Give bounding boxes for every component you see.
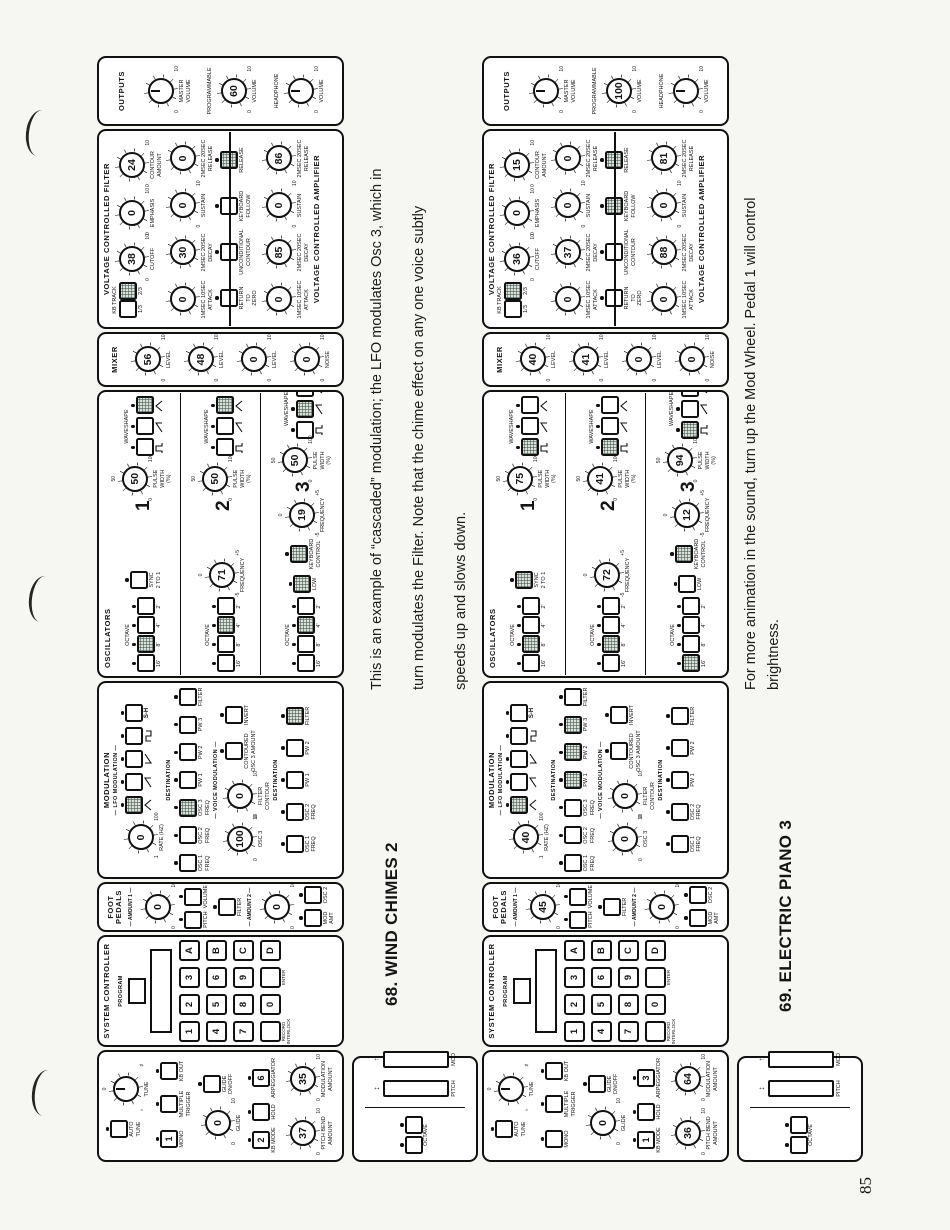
keypad-7-button[interactable]: 7: [618, 1021, 639, 1042]
button-label: 8': [541, 642, 548, 646]
button-label: MOD AMT: [323, 907, 337, 929]
keypad-d-button[interactable]: D: [260, 940, 281, 961]
glide-knob[interactable]: 0100GLIDE: [583, 1103, 628, 1143]
vcf-decay-knob[interactable]: 302MSEC 20SECDECAY: [163, 230, 215, 275]
lfo-dest-osc-1-freq-button[interactable]: OSC 1FREQ: [559, 850, 596, 876]
osc2-wave-triangle-button[interactable]: [596, 396, 629, 415]
keypad-a-button[interactable]: A: [564, 940, 585, 961]
lfo-wave-saw-up-button[interactable]: [121, 772, 154, 793]
osc2-wave-triangle-button[interactable]: [211, 396, 244, 415]
amount-1-label: — AMOUNT 1 —: [513, 888, 519, 927]
osc2-octave-8-button[interactable]: 8': [597, 636, 627, 653]
knob-value: 0: [555, 193, 581, 219]
pedal-pitch-button[interactable]: PITCH: [564, 910, 594, 929]
button-cap: [603, 898, 621, 916]
button-label: 16': [156, 660, 163, 667]
sync-2-to-1-button[interactable]: SYNC2 TO 1: [510, 566, 547, 594]
osc2-octave-16-button[interactable]: 16': [212, 655, 242, 672]
headphone-volume-knob[interactable]: 010VOLUME: [666, 65, 711, 117]
voice-dest-pw-2-button[interactable]: PW 2: [666, 733, 696, 763]
record-interlock-button[interactable]: [260, 1021, 281, 1042]
kb-mode-button[interactable]: 2KB MODE: [248, 1127, 278, 1153]
mixer-osc2-level-knob[interactable]: 01048LEVEL: [181, 337, 226, 383]
knob-dial: 010100: [223, 822, 257, 856]
button-label: 2': [701, 604, 708, 608]
keypad-b-button[interactable]: B: [206, 940, 227, 961]
osc2-pulse-width-knob[interactable]: 01005050PULSE WIDTH(%): [195, 461, 254, 496]
vca-sustain-knob[interactable]: 0100SUSTAIN: [644, 183, 689, 228]
knob-label: OSC 3: [643, 831, 650, 848]
lfo-rate-knob[interactable]: .110040RATE (HZ): [506, 818, 551, 858]
invert-button[interactable]: INVERT: [220, 702, 250, 728]
arpeggiator-button[interactable]: 3ARPEGGIATOR: [633, 1059, 663, 1097]
osc1-octave-16-button[interactable]: 16': [517, 655, 547, 672]
lfo-dest-osc-1-freq-button[interactable]: OSC 1FREQ: [174, 850, 211, 876]
scale-min: 0: [149, 498, 154, 501]
contoured-osc-3-amount-button[interactable]: CONTOURED OSC 3 AMOUNT: [220, 730, 257, 772]
tune-knob[interactable]: ♭♯0TUNE: [491, 1068, 536, 1110]
vcf-emphasis-knob[interactable]: 0100EMPHASIS: [497, 191, 542, 235]
voice-dest-pw-1-button[interactable]: PW 1: [281, 765, 311, 795]
osc3-wave-triangle-button[interactable]: [676, 390, 709, 397]
headphone-volume-knob[interactable]: 010VOLUME: [281, 65, 326, 117]
osc3-octave-16-button[interactable]: 16': [677, 655, 707, 672]
scale-min: 0: [639, 815, 644, 818]
led-indicator: [220, 713, 224, 717]
button-label: FILTER: [690, 707, 697, 726]
octave-down-button[interactable]: [400, 1136, 423, 1154]
modulation-amount-knob[interactable]: 01064MODULATION AMOUNT: [668, 1054, 720, 1104]
vcf-sustain-knob[interactable]: 0100SUSTAIN: [163, 183, 208, 228]
vcf-contour-amount-knob[interactable]: 01024CONTOURAMOUNT: [112, 141, 164, 189]
enter-button[interactable]: [260, 967, 281, 988]
lfo-dest-osc-3-freq-button[interactable]: OSC 3FREQ: [559, 795, 596, 821]
pedal-filter-button[interactable]: FILTER: [213, 895, 243, 919]
pulse-wave-icon: [155, 441, 164, 454]
osc3-octave-8-button[interactable]: 8': [292, 636, 322, 653]
osc2-wave-saw-button[interactable]: [596, 417, 629, 436]
keypad-8-button[interactable]: 8: [233, 994, 254, 1015]
hold-button[interactable]: HOLD: [633, 1101, 663, 1123]
keypad-1-button[interactable]: 1: [179, 1021, 200, 1042]
saw-down-wave-icon: [144, 753, 153, 766]
led-indicator: [179, 918, 183, 922]
keypad-c-button[interactable]: C: [233, 940, 254, 961]
lfo-wave-square-button[interactable]: [121, 726, 154, 747]
led-indicator: [597, 662, 601, 666]
lfo-rate-knob[interactable]: .11000RATE (HZ): [121, 818, 166, 858]
osc1-pulse-width-knob[interactable]: 01005075PULSE WIDTH(%): [500, 461, 559, 496]
osc2-frequency-knob[interactable]: -5+5072FREQUENCY: [587, 556, 632, 594]
keypad-7-button[interactable]: 7: [233, 1021, 254, 1042]
osc1-wave-saw-button[interactable]: [131, 417, 164, 436]
lfo-dest-pw-3-button[interactable]: PW 3: [559, 712, 589, 738]
lfo-wave-square-button[interactable]: [506, 726, 539, 747]
osc1-wave-saw-button[interactable]: [516, 417, 549, 436]
arpeggiator-button[interactable]: 6ARPEGGIATOR: [248, 1059, 278, 1097]
osc1-wave-triangle-button[interactable]: [516, 396, 549, 415]
vca-release-knob[interactable]: 862MSEC 20SECRELEASE: [259, 136, 311, 181]
scale-max: 10: [268, 335, 273, 341]
button-cap: [304, 909, 322, 927]
master-volume-knob[interactable]: 010MASTERVOLUME: [526, 63, 578, 119]
section-oscillators: OSCILLATORSOCTAVE16'8'4'2'SYNC2 TO 11010…: [482, 390, 729, 678]
voice-dest-osc-2-freq-button[interactable]: OSC 2FREQ: [281, 797, 318, 827]
lfo-wave-triangle-button[interactable]: [121, 795, 154, 816]
button-label: 2': [541, 604, 548, 608]
vca-attack-knob[interactable]: 01MSEC 10SECATTACK: [259, 277, 311, 322]
osc1-octave-2-button[interactable]: 2': [517, 598, 547, 615]
kb-track-1-3-button[interactable]: 1/3: [119, 301, 145, 317]
multiple-trigger-button[interactable]: MULTIPLE TRIGGER: [156, 1087, 193, 1121]
vcf-release-knob[interactable]: 02MSEC 20SECRELEASE: [163, 136, 215, 181]
led-indicator: [676, 407, 680, 411]
knob-value: 0: [170, 287, 196, 313]
button-label: RETURNTOZERO: [239, 287, 260, 310]
mixer-osc3-level-knob[interactable]: 0100LEVEL: [234, 337, 279, 383]
octave-up-button[interactable]: [400, 1116, 423, 1134]
osc2-octave-2-button[interactable]: 2': [212, 598, 242, 615]
hold-button[interactable]: HOLD: [248, 1101, 278, 1123]
section-vcf-vca-title: VOLTAGE CONTROLLED FILTER: [486, 163, 497, 295]
kb-track-2-3-button[interactable]: 2/3: [504, 283, 530, 299]
vca-decay-knob[interactable]: 852MSEC 20SECDECAY: [259, 230, 311, 275]
button-cap: [125, 773, 143, 791]
mono-button[interactable]: 1MONO: [156, 1125, 186, 1153]
led-indicator: [666, 810, 670, 814]
osc3-frequency-knob[interactable]: -5+5012FREQUENCY: [667, 496, 712, 534]
pedal-mod-amt-button[interactable]: MOD AMT: [299, 907, 336, 929]
vcf-decay-knob[interactable]: 372MSEC 20SECDECAY: [548, 230, 600, 275]
vcf-mode-row: RETURNTOZEROUNCONDITIONALCONTOURKEYBOARD…: [215, 130, 259, 328]
osc3-low-button[interactable]: LOW: [289, 574, 319, 594]
button-cap: [119, 300, 137, 318]
osc1-octave-2-button[interactable]: 2': [132, 598, 162, 615]
invert-button[interactable]: INVERT: [605, 702, 635, 728]
scale-min: 0: [293, 225, 298, 228]
osc1-wave-triangle-button[interactable]: [131, 396, 164, 415]
mixer-osc3-level-knob[interactable]: 0100LEVEL: [619, 337, 664, 383]
pedal-osc-2-button[interactable]: OSC 2: [684, 885, 714, 905]
vca-decay-knob[interactable]: 882MSEC 20SECDECAY: [644, 230, 696, 275]
button-cap: [510, 796, 528, 814]
pitch-wheel[interactable]: [768, 1080, 834, 1097]
pitch-wheel[interactable]: [383, 1080, 449, 1097]
pedal-mod-amt-button[interactable]: MOD AMT: [684, 907, 721, 929]
mod-wheel[interactable]: [768, 1051, 834, 1068]
voice-dest-filter-button[interactable]: FILTER: [666, 701, 696, 731]
voice-filter-contour-knob[interactable]: 0100FILTER CONTOUR: [605, 774, 657, 818]
modulation-amount-knob[interactable]: 01035MODULATION AMOUNT: [283, 1054, 335, 1104]
osc3-octave-4-button[interactable]: 4': [677, 617, 707, 634]
voice-dest-osc-1-freq-button[interactable]: OSC 1FREQ: [666, 829, 703, 859]
osc1-octave-8-button[interactable]: 8': [132, 636, 162, 653]
knob-label: LEVEL: [657, 351, 664, 368]
lfo-dest-pw-3-button[interactable]: PW 3: [174, 712, 204, 738]
keypad-b-button[interactable]: B: [591, 940, 612, 961]
button-label: ARPEGGIATOR: [656, 1058, 663, 1098]
keypad-4-button[interactable]: 4: [206, 1021, 227, 1042]
lfo-wave-triangle-button[interactable]: [506, 795, 539, 816]
vca-sustain-knob[interactable]: 0100SUSTAIN: [259, 183, 304, 228]
voice-dest-osc-1-freq-button[interactable]: OSC 1FREQ: [281, 829, 318, 859]
glide-on-off-button[interactable]: GLIDE ON/OFF: [583, 1069, 620, 1099]
osc3-octave-16-button[interactable]: 16': [292, 655, 322, 672]
keypad-d-button[interactable]: D: [645, 940, 666, 961]
lfo-wave-sample-hold-button[interactable]: S-H: [121, 703, 151, 724]
pitch-wheel-group: ↕PITCH: [373, 1080, 458, 1097]
auto-tune-button[interactable]: AUTO TUNE: [106, 1114, 143, 1144]
keypad-8-button[interactable]: 8: [618, 994, 639, 1015]
knob-dial: 0100: [586, 1106, 620, 1140]
pulse-wave-icon: [315, 423, 324, 436]
keypad-9-button[interactable]: 9: [618, 967, 639, 988]
knob-value: 0: [651, 287, 677, 313]
knob-dial: 0100: [237, 343, 271, 377]
keypad-1-button[interactable]: 1: [564, 1021, 585, 1042]
row: OSC 1FREQOSC 2FREQOSC 3FREQPW 1PW 2PW 3F…: [174, 684, 211, 876]
knob-dial: 01056: [131, 343, 165, 377]
osc1-octave-8-button[interactable]: 8': [517, 636, 547, 653]
led-indicator: [212, 662, 216, 666]
keyboard-follow-button[interactable]: KEYBOARDFOLLOW: [215, 184, 252, 228]
osc1-octave-16-button[interactable]: 16': [132, 655, 162, 672]
vcf-release-knob[interactable]: 02MSEC 20SECRELEASE: [548, 136, 600, 181]
octave-down-button[interactable]: [785, 1136, 808, 1154]
osc3-wave-saw-button[interactable]: [291, 399, 324, 418]
vcf-sustain-knob[interactable]: 0100SUSTAIN: [548, 183, 593, 228]
button-cap: [545, 1095, 563, 1113]
unconditional-contour-button[interactable]: UNCONDITIONALCONTOUR: [600, 230, 637, 274]
knob-label: GLIDE: [236, 1115, 243, 1132]
lfo-dest-pw-1-button[interactable]: PW 1: [559, 767, 589, 793]
knob-label: 2MSEC 20SECRELEASE: [201, 140, 215, 178]
kb-track-2-3-button[interactable]: 2/3: [119, 283, 145, 299]
mixer-osc2-level-knob[interactable]: 01041LEVEL: [566, 337, 611, 383]
osc3-octave-2-button[interactable]: 2': [292, 598, 322, 615]
osc3-wave-triangle-button[interactable]: [291, 390, 324, 397]
lfo-dest-osc-3-freq-button[interactable]: OSC 3FREQ: [174, 795, 211, 821]
knob-dial: .11000: [124, 821, 158, 855]
scale-min: 0: [232, 1142, 237, 1145]
auto-tune-button[interactable]: AUTO TUNE: [491, 1114, 528, 1144]
octave-label: OCTAVE: [590, 624, 597, 646]
led-indicator: [174, 806, 178, 810]
triangle-wave-icon: [144, 799, 153, 812]
glide-knob[interactable]: 0100GLIDE: [198, 1103, 243, 1143]
tune-knob[interactable]: ♭♯0TUNE: [106, 1068, 151, 1110]
keypad-4-button[interactable]: 4: [591, 1021, 612, 1042]
lfo-dest-pw-2-button[interactable]: PW 2: [174, 739, 204, 765]
led-indicator: [299, 916, 303, 920]
osc2-octave-16-button[interactable]: 16': [597, 655, 627, 672]
mono-button[interactable]: MONO: [541, 1125, 571, 1153]
button-cap: [225, 706, 243, 724]
lfo-dest-osc-2-freq-button[interactable]: OSC 2FREQ: [559, 823, 596, 849]
program-window-large: [150, 949, 172, 1033]
lfo-wave-saw-down-button[interactable]: [121, 749, 154, 770]
lfo-dest-pw-2-button[interactable]: PW 2: [559, 739, 589, 765]
enter-button[interactable]: [645, 967, 666, 988]
mixer-noise-knob[interactable]: 0100NOISE: [672, 337, 717, 383]
knob-value: 0: [266, 193, 292, 219]
scale-max: 100: [155, 813, 160, 821]
osc3-octave-8-button[interactable]: 8': [677, 636, 707, 653]
mixer-osc1-level-knob[interactable]: 01056LEVEL: [128, 337, 173, 383]
keyboard-follow-button[interactable]: KEYBOARDFOLLOW: [600, 184, 637, 228]
pedal-pitch-button[interactable]: PITCH: [179, 910, 209, 929]
knob-dial: -5+5071: [205, 558, 239, 592]
vcf-attack-knob[interactable]: 01MSEC 10SECATTACK: [548, 277, 600, 322]
led-indicator: [248, 1076, 252, 1080]
waveshape-group: WAVESHAPE: [669, 390, 708, 439]
glide-on-off-button[interactable]: GLIDE ON/OFF: [198, 1069, 235, 1099]
lfo-dest-filter-button[interactable]: FILTER: [174, 684, 204, 710]
osc2-octave-4-button[interactable]: 4': [597, 617, 627, 634]
vcf-emphasis-knob[interactable]: 0100EMPHASIS: [112, 191, 157, 235]
lfo-wave-saw-down-button[interactable]: [506, 749, 539, 770]
kb-mode-button[interactable]: 1KB MODE: [633, 1127, 663, 1153]
osc1-octave-4-button[interactable]: 4': [132, 617, 162, 634]
button-label: FILTER: [305, 707, 312, 726]
osc2-octave-4-button[interactable]: 4': [212, 617, 242, 634]
contoured-osc-3-amount-button[interactable]: CONTOURED OSC 3 AMOUNT: [605, 730, 642, 772]
button-label: 4': [316, 623, 323, 627]
keypad-5-button[interactable]: 5: [206, 994, 227, 1015]
lfo-wave-saw-up-button[interactable]: [506, 772, 539, 793]
pedal-amount-1-knob[interactable]: 01045: [523, 884, 561, 930]
keypad-3-button[interactable]: 3: [564, 967, 585, 988]
vcf-contour-amount-knob[interactable]: 01015CONTOURAMOUNT: [497, 141, 549, 189]
keypad-0-button[interactable]: 0: [645, 994, 666, 1015]
osc3-frequency-knob[interactable]: -5+5019FREQUENCY: [282, 496, 327, 534]
kb-track-1-3-button[interactable]: 1/3: [504, 301, 530, 317]
osc1-octave-4-button[interactable]: 4': [517, 617, 547, 634]
keypad-6-button[interactable]: 6: [591, 967, 612, 988]
row: 16'8'4'2': [677, 598, 707, 672]
keypad-a-button[interactable]: A: [179, 940, 200, 961]
mixer-osc1-level-knob[interactable]: 01040LEVEL: [513, 337, 558, 383]
scale-min: 0: [254, 858, 259, 861]
button-cap: [521, 418, 539, 436]
button-cap: [682, 636, 700, 654]
kb-out-button[interactable]: KB OUT: [541, 1059, 571, 1083]
octave-up-button[interactable]: [785, 1116, 808, 1134]
return-to-zero-button[interactable]: RETURNTOZERO: [600, 276, 644, 320]
knob-dial: 01005075: [503, 462, 537, 496]
keypad-0-button[interactable]: 0: [260, 994, 281, 1015]
pedal-volume-button[interactable]: VOLUME: [564, 885, 594, 908]
vcf-cutoff-knob[interactable]: 01038CUTOFF: [112, 237, 157, 281]
master-volume-knob[interactable]: 010MASTERVOLUME: [141, 63, 193, 119]
return-to-zero-button[interactable]: RETURNTOZERO: [215, 276, 259, 320]
voice-dest-osc-2-freq-button[interactable]: OSC 2FREQ: [666, 797, 703, 827]
lfo-dest-osc-2-freq-button[interactable]: OSC 2FREQ: [174, 823, 211, 849]
keypad-2-button[interactable]: 2: [179, 994, 200, 1015]
record-interlock-button[interactable]: [645, 1021, 666, 1042]
programmable-volume-knob[interactable]: 010100VOLUME: [599, 65, 644, 117]
keypad-6-button[interactable]: 6: [206, 967, 227, 988]
knob-label: CONTOURAMOUNT: [535, 151, 549, 179]
osc3-octave-4-button[interactable]: 4': [292, 617, 322, 634]
record-interlock-label: RECORDINTERLOCK: [666, 1019, 677, 1045]
knob-label: FREQUENCY: [625, 558, 632, 593]
lfo-wave-sample-hold-button[interactable]: S-H: [506, 703, 536, 724]
programmable-volume-knob[interactable]: 01060VOLUME: [214, 65, 259, 117]
saw-wave-icon: [315, 402, 324, 415]
osc3-pulse-width-knob[interactable]: 01005094PULSE WIDTH(%): [660, 443, 719, 477]
button-label: INVERT: [629, 705, 636, 725]
keypad-3-button[interactable]: 3: [179, 967, 200, 988]
osc3-pulse-width-knob[interactable]: 01005050PULSE WIDTH(%): [275, 443, 334, 477]
keypad-9-button[interactable]: 9: [233, 967, 254, 988]
pedal-osc-2-button[interactable]: OSC 2: [299, 885, 329, 905]
mod-wheel[interactable]: [383, 1051, 449, 1068]
osc3-wave-saw-button[interactable]: [676, 399, 709, 418]
pitch-bend-amount-knob[interactable]: 01036PITCH BEND AMOUNT: [668, 1108, 720, 1158]
destination-label: DESTINATION: [273, 759, 280, 800]
osc2-wave-saw-button[interactable]: [211, 417, 244, 436]
vca-attack-knob[interactable]: 01MSEC 10SECATTACK: [644, 277, 696, 322]
voice-dest-pw-2-button[interactable]: PW 2: [281, 733, 311, 763]
vcf-cutoff-knob[interactable]: 01036CUTOFF: [497, 237, 542, 281]
osc1-pulse-width-knob[interactable]: 01005050PULSE WIDTH(%): [115, 461, 174, 496]
voice-osc-3-knob[interactable]: 0100OSC 3: [605, 820, 650, 858]
scale-max: 100: [309, 435, 314, 443]
pitch-bend-amount-knob[interactable]: 01037PITCH BEND AMOUNT: [283, 1108, 335, 1158]
osc2-octave-8-button[interactable]: 8': [212, 636, 242, 653]
lfo-dest-filter-button[interactable]: FILTER: [559, 684, 589, 710]
led-indicator: [292, 643, 296, 647]
unconditional-contour-button[interactable]: UNCONDITIONALCONTOUR: [215, 230, 252, 274]
led-indicator: [131, 425, 135, 429]
pedal-filter-button[interactable]: FILTER: [598, 895, 628, 919]
pedal-amount-1-knob[interactable]: 0100: [138, 884, 176, 930]
voice-filter-contour-knob[interactable]: 0100FILTER CONTOUR: [220, 774, 272, 818]
oscillator-2-row: OCTAVE16'8'4'2'-5+5071FREQUENCY201005050…: [181, 393, 261, 675]
waveshape-group: WAVESHAPE: [204, 396, 243, 457]
keypad-c-button[interactable]: C: [618, 940, 639, 961]
keypad-2-button[interactable]: 2: [564, 994, 585, 1015]
vca-release-knob[interactable]: 812MSEC 20SECRELEASE: [644, 136, 696, 181]
voice-dest-pw-1-button[interactable]: PW 1: [666, 765, 696, 795]
pedal-amount-2-knob[interactable]: 0100: [642, 884, 680, 930]
keypad-5-button[interactable]: 5: [591, 994, 612, 1015]
waveshape-label: WAVESHAPE: [669, 392, 676, 426]
osc3-octave-2-button[interactable]: 2': [677, 598, 707, 615]
headphone-label: HEADPHONE: [274, 74, 281, 109]
voice-osc-3-knob[interactable]: 010100OSC 3: [220, 820, 265, 858]
vcf-attack-knob[interactable]: 01MSEC 10SECATTACK: [163, 277, 215, 322]
lfo-dest-pw-1-button[interactable]: PW 1: [174, 767, 204, 793]
pedal-amount-2-knob[interactable]: 0100: [257, 884, 295, 930]
led-indicator: [559, 751, 563, 755]
sync-2-to-1-button[interactable]: SYNC2 TO 1: [125, 566, 162, 594]
osc3-keyboard-control-button[interactable]: KEYBOARDCONTROL: [670, 537, 707, 571]
pedal-volume-button[interactable]: VOLUME: [179, 885, 209, 908]
voice-dest-filter-button[interactable]: FILTER: [281, 701, 311, 731]
osc2-pulse-width-knob[interactable]: 01005041PULSE WIDTH(%): [580, 461, 639, 496]
osc3-low-button[interactable]: LOW: [674, 574, 704, 594]
osc2-frequency-knob[interactable]: -5+5071FREQUENCY: [202, 556, 247, 594]
osc3-keyboard-control-button[interactable]: KEYBOARDCONTROL: [285, 537, 322, 571]
mixer-noise-knob[interactable]: 0100NOISE: [287, 337, 332, 383]
multiple-trigger-button[interactable]: MULTIPLE TRIGGER: [541, 1087, 578, 1121]
button-label: MULTIPLE TRIGGER: [564, 1087, 578, 1121]
button-label: PW 1: [198, 773, 205, 786]
kb-out-button[interactable]: KB OUT: [156, 1059, 186, 1083]
osc2-octave-2-button[interactable]: 2': [597, 598, 627, 615]
